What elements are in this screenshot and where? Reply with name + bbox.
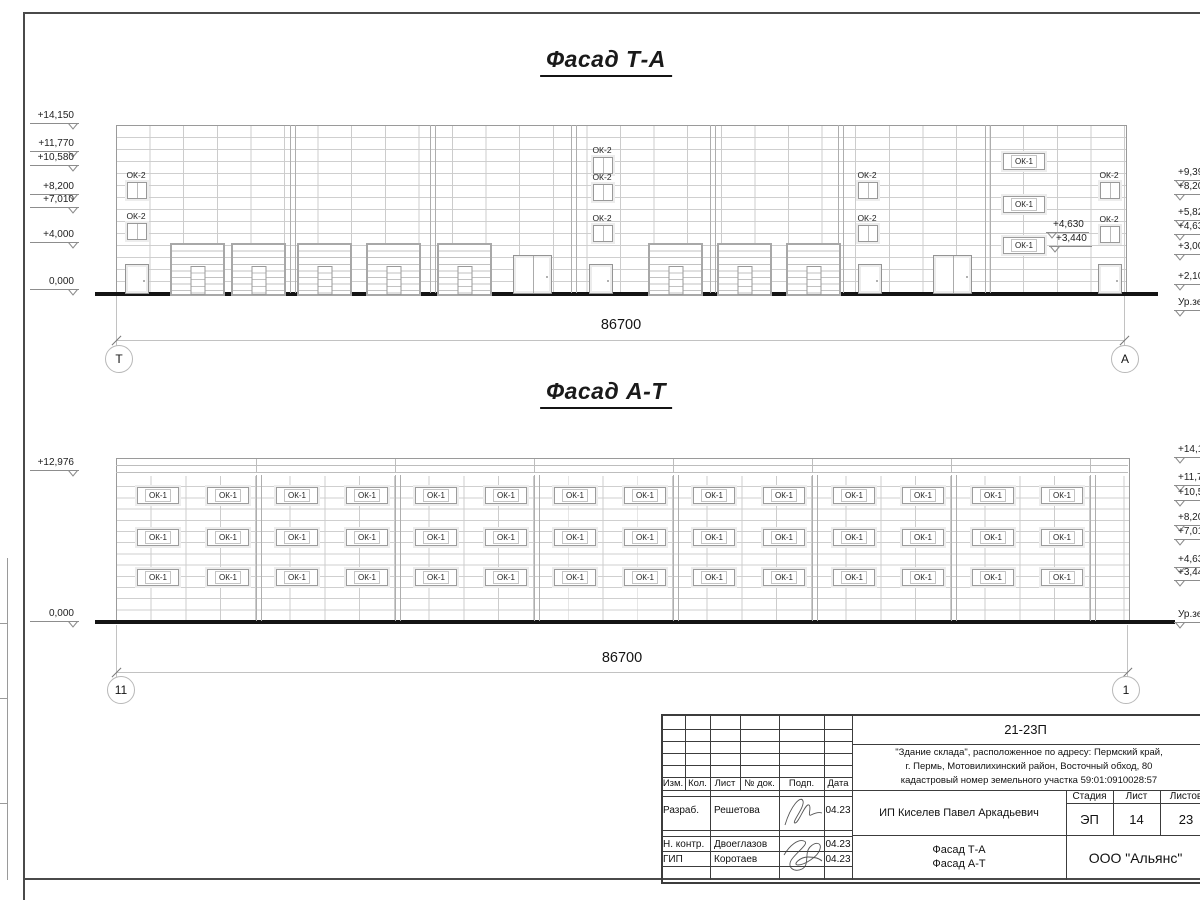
drawing-name: Фасад Т-А Фасад А-Т — [853, 836, 1065, 886]
stage-value: ЭП — [1066, 803, 1113, 835]
bay-line — [673, 475, 679, 621]
elevation-chevron-icon — [1175, 539, 1185, 546]
window-ok1: ОК-1 — [1003, 237, 1045, 254]
window-ok2 — [593, 225, 613, 242]
elevation-chevron-icon — [1175, 194, 1185, 201]
gate-window — [386, 266, 401, 295]
window-ok1: ОК-1 — [1041, 529, 1083, 546]
title-block-line — [779, 714, 780, 880]
window-ok1-label: ОК-1 — [701, 489, 727, 502]
title-block-line — [852, 714, 853, 880]
elevation-mark: +10,58 — [1174, 487, 1200, 501]
window-ok2 — [1100, 182, 1120, 199]
title-block-line — [852, 835, 1200, 836]
title-block-line — [661, 836, 852, 837]
drawing-name-line1: Фасад Т-А — [932, 844, 985, 856]
elevation-mark: +4,630 — [1046, 219, 1089, 233]
door — [589, 264, 613, 294]
gate — [170, 243, 225, 296]
elevation-mark: Ур.зе — [1174, 297, 1200, 311]
gate-window — [317, 266, 332, 295]
project-description-line2: г. Пермь, Мотовилихинский район, Восточн… — [906, 761, 1153, 772]
window-ok2 — [1100, 226, 1120, 243]
bay-line — [1090, 475, 1096, 621]
bay-line — [534, 475, 540, 621]
project-code: 21-23П — [853, 716, 1198, 743]
window-ok1: ОК-1 — [346, 487, 388, 504]
window-ok1-label: ОК-1 — [493, 489, 519, 502]
elevation-chevron-icon — [1175, 310, 1185, 317]
elevation-mark: +9,39 — [1174, 167, 1200, 181]
gate-window — [251, 266, 266, 295]
elevation-mark: +12,976 — [30, 457, 79, 471]
row-date-developer: 04.23 — [824, 804, 852, 816]
elevation-mark: +7,010 — [30, 194, 79, 208]
window-ok1: ОК-1 — [693, 569, 735, 586]
window-ok1-label: ОК-1 — [145, 571, 171, 584]
title-block-line — [1113, 790, 1114, 835]
window-ok1-label: ОК-1 — [354, 571, 380, 584]
window-ok1: ОК-1 — [902, 487, 944, 504]
window-ok1: ОК-1 — [1041, 569, 1083, 586]
col-header-kol: Кол. — [685, 777, 710, 790]
window-ok1-label: ОК-1 — [701, 531, 727, 544]
bay-line — [256, 475, 262, 621]
window-ok1-label: ОК-1 — [910, 531, 936, 544]
frame-left-border — [23, 12, 25, 900]
window-ok2-label: ОК-2 — [116, 170, 156, 180]
gate — [297, 243, 352, 296]
row-date-gip: 04.23 — [824, 853, 852, 865]
window-ok2 — [127, 182, 147, 199]
window-ok1-label: ОК-1 — [1049, 571, 1075, 584]
row-name-gip: Коротаев — [714, 853, 778, 865]
double-door — [513, 255, 552, 294]
window-ok1: ОК-1 — [137, 569, 179, 586]
window-ok1-label: ОК-1 — [841, 489, 867, 502]
row-role-gip: ГИП — [663, 853, 709, 865]
window-ok1-label: ОК-1 — [980, 571, 1006, 584]
window-ok2 — [127, 223, 147, 240]
project-description: "Здание склада", расположенное по адресу… — [855, 746, 1200, 789]
window-ok2-label: ОК-2 — [1089, 214, 1129, 224]
parapet-line — [116, 472, 1128, 473]
window-ok1: ОК-1 — [833, 569, 875, 586]
parapet-joint — [812, 459, 813, 473]
signature-ncontrol-gip — [780, 831, 824, 875]
window-ok1: ОК-1 — [763, 569, 805, 586]
elevation-mark: +4,63 — [1174, 554, 1200, 568]
col-header-izm: Изм. — [661, 777, 685, 790]
row-name-developer: Решетова — [714, 804, 778, 816]
door — [1098, 264, 1122, 294]
sheets-header: Листов — [1160, 790, 1200, 803]
window-ok1: ОК-1 — [485, 569, 527, 586]
window-ok1-label: ОК-1 — [423, 571, 449, 584]
elevation-chevron-icon — [68, 165, 78, 172]
sheet-header: Лист — [1113, 790, 1160, 803]
title-block-line — [661, 765, 852, 766]
window-ok1-label: ОК-1 — [1011, 198, 1037, 211]
facade-ta-title: Фасад Т-А — [540, 46, 672, 77]
window-ok1: ОК-1 — [276, 569, 318, 586]
window-ok1: ОК-1 — [276, 487, 318, 504]
window-ok2-label: ОК-2 — [1089, 170, 1129, 180]
window-ok1-label: ОК-1 — [910, 571, 936, 584]
elevation-chevron-icon — [1175, 580, 1185, 587]
elevation-chevron-icon — [68, 242, 78, 249]
window-ok2 — [593, 184, 613, 201]
window-ok1-label: ОК-1 — [1049, 531, 1075, 544]
window-ok1-label: ОК-1 — [562, 531, 588, 544]
parapet-joint — [951, 459, 952, 473]
elevation-mark: +3,00 — [1174, 241, 1200, 255]
dimension-text-at: 86700 — [590, 650, 654, 666]
title-block-line — [710, 714, 711, 880]
sheets-total: 23 — [1160, 803, 1200, 835]
door — [125, 264, 149, 294]
axis-circle-11: 11 — [107, 676, 135, 704]
window-ok1: ОК-1 — [624, 529, 666, 546]
window-ok1: ОК-1 — [207, 529, 249, 546]
elevation-chevron-icon — [68, 621, 78, 628]
elevation-mark: 0,000 — [30, 276, 79, 290]
gate — [437, 243, 492, 296]
margin-column-divider — [0, 803, 7, 804]
window-ok1-label: ОК-1 — [1049, 489, 1075, 502]
axis-circle-1: 1 — [1112, 676, 1140, 704]
title-block-line — [685, 714, 686, 790]
parapet-line — [116, 465, 1128, 466]
elevation-mark: +3,440 — [1049, 233, 1092, 247]
elevation-mark: 0,000 — [30, 608, 79, 622]
bay-line — [395, 475, 401, 621]
col-header-podp: Подп. — [779, 777, 824, 790]
col-header-list: Лист — [710, 777, 740, 790]
window-ok1-label: ОК-1 — [423, 531, 449, 544]
parapet-joint — [256, 459, 257, 473]
parapet-joint — [534, 459, 535, 473]
window-ok1-label: ОК-1 — [354, 489, 380, 502]
col-header-data: Дата — [824, 777, 852, 790]
window-ok2-label: ОК-2 — [582, 145, 622, 155]
window-ok1: ОК-1 — [1003, 153, 1045, 170]
window-ok1-label: ОК-1 — [1011, 155, 1037, 168]
window-ok1-label: ОК-1 — [215, 531, 241, 544]
window-ok1: ОК-1 — [415, 487, 457, 504]
elevation-chevron-icon — [1175, 234, 1185, 241]
window-ok1-label: ОК-1 — [284, 531, 310, 544]
title-block-line — [852, 744, 1200, 745]
window-ok1-label: ОК-1 — [354, 531, 380, 544]
window-ok1-label: ОК-1 — [701, 571, 727, 584]
elevation-chevron-icon — [68, 207, 78, 214]
window-ok1-label: ОК-1 — [423, 489, 449, 502]
title-block-line — [661, 753, 852, 754]
window-ok1-label: ОК-1 — [1011, 239, 1037, 252]
window-ok1: ОК-1 — [972, 487, 1014, 504]
dimension-line — [116, 340, 1125, 341]
window-ok1: ОК-1 — [137, 487, 179, 504]
window-ok1: ОК-1 — [207, 569, 249, 586]
window-ok1: ОК-1 — [1041, 487, 1083, 504]
elevation-chevron-icon — [1050, 246, 1060, 253]
window-ok1-label: ОК-1 — [771, 531, 797, 544]
elevation-chevron-icon — [1175, 500, 1185, 507]
bay-line — [985, 125, 991, 293]
title-block-line — [661, 851, 852, 852]
elevation-mark: +14,15 — [1174, 444, 1200, 458]
elevation-mark: +10,580 — [30, 152, 79, 166]
window-ok1: ОК-1 — [276, 529, 318, 546]
window-ok1-label: ОК-1 — [841, 531, 867, 544]
bay-line — [710, 125, 716, 293]
window-ok1-label: ОК-1 — [145, 531, 171, 544]
window-ok2 — [858, 225, 878, 242]
window-ok1: ОК-1 — [415, 569, 457, 586]
title-block-line — [740, 714, 741, 790]
elevation-chevron-icon — [1175, 254, 1185, 261]
project-description-line1: "Здание склада", расположенное по адресу… — [895, 747, 1162, 758]
elevation-mark: +8,20 — [1174, 512, 1200, 526]
bay-line — [951, 475, 957, 621]
window-ok1: ОК-1 — [346, 529, 388, 546]
row-role-ncontrol: Н. контр. — [663, 838, 713, 850]
title-block-line — [661, 741, 852, 742]
gate — [366, 243, 421, 296]
window-ok1: ОК-1 — [137, 529, 179, 546]
title-block-line — [824, 714, 825, 880]
window-ok1-label: ОК-1 — [841, 571, 867, 584]
window-ok2-label: ОК-2 — [582, 213, 622, 223]
window-ok1: ОК-1 — [485, 487, 527, 504]
window-ok1-label: ОК-1 — [632, 489, 658, 502]
gate-window — [737, 266, 752, 295]
drawing-sheet: { "titles": { "top": "Фасад Т-А", "botto… — [0, 0, 1200, 900]
window-ok1-label: ОК-1 — [562, 489, 588, 502]
elevation-mark: +11,770 — [30, 138, 79, 152]
window-ok1-label: ОК-1 — [910, 489, 936, 502]
window-ok1-label: ОК-1 — [493, 571, 519, 584]
window-ok1: ОК-1 — [972, 529, 1014, 546]
title-block-line — [661, 729, 852, 730]
window-ok1: ОК-1 — [972, 569, 1014, 586]
elevation-mark: +7,01 — [1174, 526, 1200, 540]
window-ok1: ОК-1 — [833, 487, 875, 504]
elevation-mark: +4,63 — [1174, 221, 1200, 235]
window-ok1: ОК-1 — [207, 487, 249, 504]
window-ok1: ОК-1 — [833, 529, 875, 546]
elevation-chevron-icon — [1175, 284, 1185, 291]
window-ok2-label: ОК-2 — [847, 170, 887, 180]
elevation-chevron-icon — [68, 289, 78, 296]
drawing-name-line2: Фасад А-Т — [932, 858, 985, 870]
window-ok1-label: ОК-1 — [562, 571, 588, 584]
elevation-mark: Ур.зем — [1174, 609, 1200, 623]
row-date-ncontrol: 04.23 — [824, 838, 852, 850]
company-name: ООО "Альянс" — [1066, 836, 1200, 879]
facade-at-title: Фасад А-Т — [540, 378, 672, 409]
window-ok1: ОК-1 — [624, 487, 666, 504]
margin-column-divider — [0, 623, 7, 624]
title-block-line — [661, 777, 852, 778]
bay-line — [571, 125, 577, 293]
gate-window — [457, 266, 472, 295]
bay-line — [430, 125, 436, 293]
parapet-joint — [673, 459, 674, 473]
window-ok1: ОК-1 — [346, 569, 388, 586]
elevation-chevron-icon — [68, 123, 78, 130]
window-ok1-label: ОК-1 — [632, 531, 658, 544]
door — [858, 264, 882, 294]
window-ok1: ОК-1 — [624, 569, 666, 586]
row-name-ncontrol: Двоеглазов — [714, 838, 778, 850]
window-ok1: ОК-1 — [415, 529, 457, 546]
elevation-mark: +14,150 — [30, 110, 79, 124]
window-ok1: ОК-1 — [485, 529, 527, 546]
row-role-developer: Разраб. — [663, 804, 709, 816]
window-ok2 — [858, 182, 878, 199]
window-ok1-label: ОК-1 — [215, 489, 241, 502]
gate-window — [190, 266, 205, 295]
elevation-mark: +8,200 — [30, 181, 79, 195]
elevation-mark: +11,77 — [1174, 472, 1200, 486]
window-ok1-label: ОК-1 — [215, 571, 241, 584]
elevation-mark: +8,20 — [1174, 181, 1200, 195]
window-ok1: ОК-1 — [554, 529, 596, 546]
window-ok1: ОК-1 — [693, 529, 735, 546]
parapet-joint — [1090, 459, 1091, 473]
title-block-line — [661, 830, 852, 831]
double-door — [933, 255, 972, 294]
bay-line — [290, 125, 296, 293]
margin-column-divider — [0, 698, 7, 699]
axis-circle-a: А — [1111, 345, 1139, 373]
window-ok1: ОК-1 — [902, 569, 944, 586]
title-block-line — [661, 790, 1200, 791]
gate — [786, 243, 841, 296]
frame-top-border — [23, 12, 1200, 14]
elevation-mark: +5,82 — [1174, 207, 1200, 221]
window-ok1-label: ОК-1 — [632, 571, 658, 584]
signature-developer — [781, 793, 823, 831]
elevation-chevron-icon — [1175, 622, 1185, 629]
window-ok1: ОК-1 — [763, 529, 805, 546]
window-ok1-label: ОК-1 — [493, 531, 519, 544]
title-block-line — [661, 796, 852, 797]
window-ok1-label: ОК-1 — [980, 531, 1006, 544]
elevation-mark: +4,000 — [30, 229, 79, 243]
stage-header: Стадия — [1066, 790, 1113, 803]
gate — [231, 243, 286, 296]
gate-window — [668, 266, 683, 295]
window-ok2-label: ОК-2 — [847, 213, 887, 223]
margin-column-line — [7, 558, 8, 880]
window-ok1: ОК-1 — [693, 487, 735, 504]
window-ok1: ОК-1 — [902, 529, 944, 546]
elevation-mark: +2,10 — [1174, 271, 1200, 285]
elevation-chevron-icon — [1175, 457, 1185, 464]
window-ok1-label: ОК-1 — [771, 489, 797, 502]
window-ok1-label: ОК-1 — [980, 489, 1006, 502]
project-description-line3: кадастровый номер земельного участка 59:… — [901, 775, 1157, 786]
window-ok1-label: ОК-1 — [145, 489, 171, 502]
window-ok1: ОК-1 — [763, 487, 805, 504]
sheet-number: 14 — [1113, 803, 1160, 835]
gate — [717, 243, 772, 296]
axis-circle-t: Т — [105, 345, 133, 373]
window-ok1: ОК-1 — [1003, 196, 1045, 213]
title-block-line — [1066, 803, 1200, 804]
window-ok2-label: ОК-2 — [582, 172, 622, 182]
gate — [648, 243, 703, 296]
window-ok1: ОК-1 — [554, 569, 596, 586]
parapet-joint — [395, 459, 396, 473]
dimension-text-ta: 86700 — [589, 317, 653, 333]
client-name: ИП Киселев Павел Аркадьевич — [853, 791, 1065, 834]
gate-window — [806, 266, 821, 295]
window-ok1-label: ОК-1 — [284, 489, 310, 502]
bay-line — [812, 475, 818, 621]
col-header-doc: № док. — [740, 777, 779, 790]
window-ok1-label: ОК-1 — [771, 571, 797, 584]
window-ok2-label: ОК-2 — [116, 211, 156, 221]
dimension-line — [116, 672, 1128, 673]
elevation-chevron-icon — [68, 470, 78, 477]
title-block-line — [661, 866, 852, 867]
title-block-line — [1160, 790, 1161, 835]
elevation-mark: +3,44 — [1174, 567, 1200, 581]
window-ok1-label: ОК-1 — [284, 571, 310, 584]
window-ok1: ОК-1 — [554, 487, 596, 504]
